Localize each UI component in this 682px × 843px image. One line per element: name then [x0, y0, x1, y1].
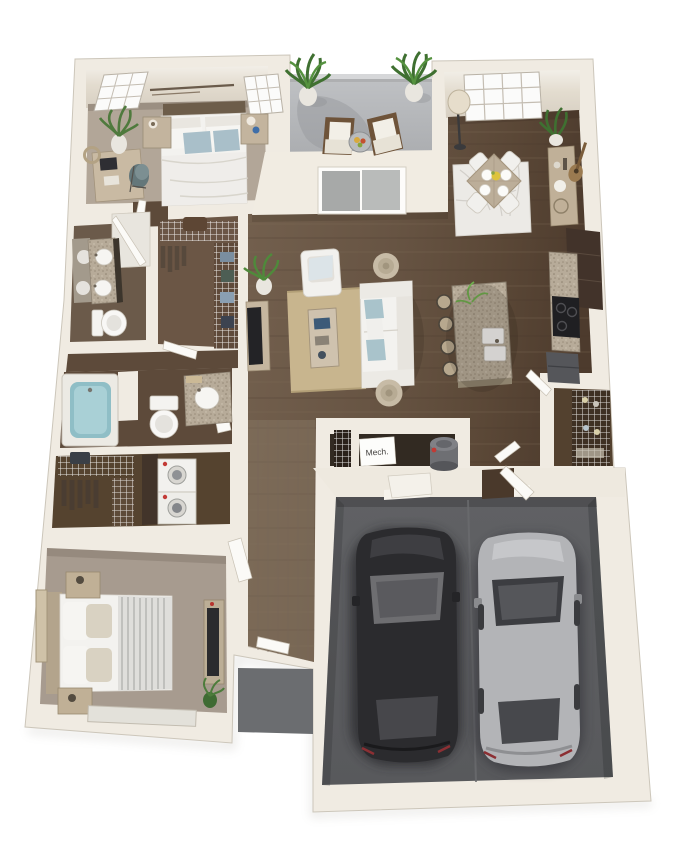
svg-text:Mech.: Mech.: [365, 446, 388, 458]
